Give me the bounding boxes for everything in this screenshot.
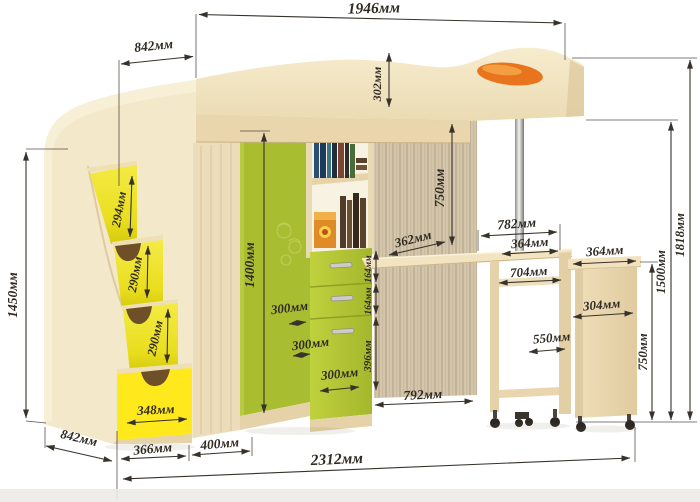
dim-label-cabinet-height: 750мм <box>635 333 650 370</box>
dim-label-shelf-drawer-2: 164мм <box>364 287 374 315</box>
dim-label-desk-top-width: 364мм <box>510 234 549 252</box>
dim-label-ladder-width: 366мм <box>132 439 173 457</box>
loft-bed <box>196 48 584 143</box>
dim-label-bottom-drawer: 348мм <box>136 401 175 418</box>
dim-label-bed-base-height: 1500мм <box>653 250 668 294</box>
furniture-dimension-diagram: 1946мм 842мм 302мм 1450мм 294мм 290мм <box>0 0 700 502</box>
dim-label-under-bed-width: 792мм <box>403 386 442 403</box>
dim-wardrobe-front-width: 400мм <box>192 434 252 456</box>
dim-label-upper-depth: 842мм <box>133 36 173 55</box>
watermark-strip <box>0 489 700 502</box>
dim-label-bed-rail-height: 302мм <box>370 67 384 102</box>
dim-label-total-length: 2312мм <box>309 450 363 469</box>
dim-label-total-height: 1818мм <box>672 213 687 257</box>
dim-label-ladder-height: 1450мм <box>5 272 20 318</box>
dim-label-desk-length: 782мм <box>497 215 537 233</box>
dim-label-cabinet-top-width: 364мм <box>585 242 624 260</box>
dim-label-desk-shelf-width: 704мм <box>510 263 548 281</box>
dim-label-wardrobe-front-width: 400мм <box>199 434 240 452</box>
dim-label-lower-drawer: 396мм <box>362 340 374 373</box>
furniture <box>44 48 641 451</box>
dim-label-bed-top-length: 1946мм <box>348 0 401 18</box>
wardrobe-side-panel <box>193 138 240 438</box>
mobile-cabinet <box>568 256 641 432</box>
dim-label-wardrobe-height: 1400мм <box>242 242 257 288</box>
dim-label-under-bed-height: 750мм <box>432 169 447 208</box>
dim-label-shelf-drawer-1: 164мм <box>364 255 374 283</box>
